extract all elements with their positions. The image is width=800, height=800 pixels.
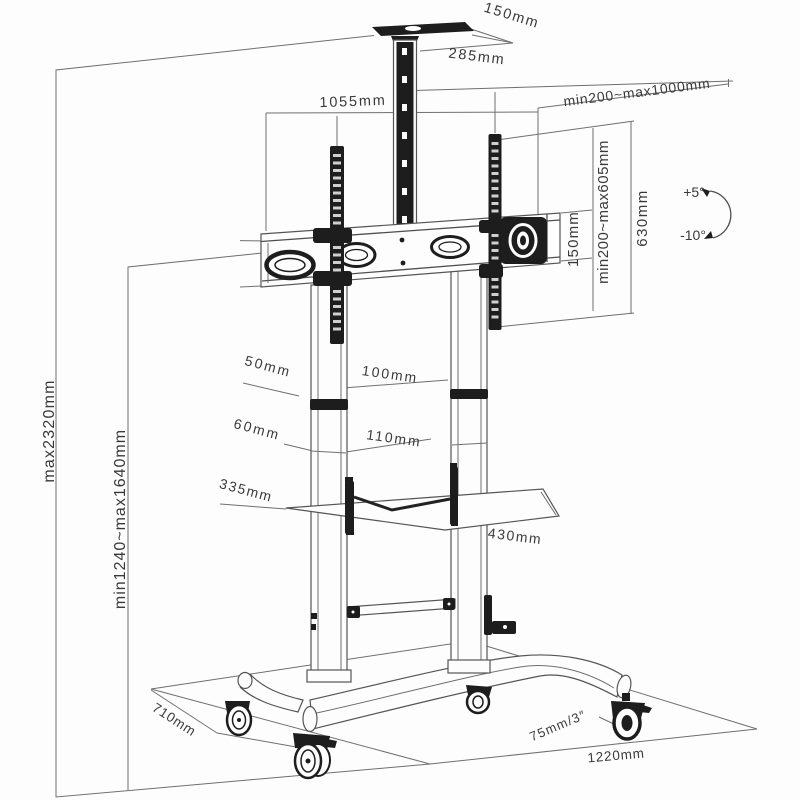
svg-text:150mm: 150mm — [565, 211, 582, 267]
svg-text:1055mm: 1055mm — [319, 93, 387, 111]
svg-text:max2320mm: max2320mm — [41, 379, 58, 482]
svg-text:630mm: 630mm — [634, 189, 651, 247]
svg-text:min1240~max1640mm: min1240~max1640mm — [112, 429, 129, 609]
svg-text:-10°: -10° — [680, 227, 706, 243]
svg-text:+5°: +5° — [683, 184, 705, 200]
svg-text:min200~max605mm: min200~max605mm — [595, 140, 612, 284]
